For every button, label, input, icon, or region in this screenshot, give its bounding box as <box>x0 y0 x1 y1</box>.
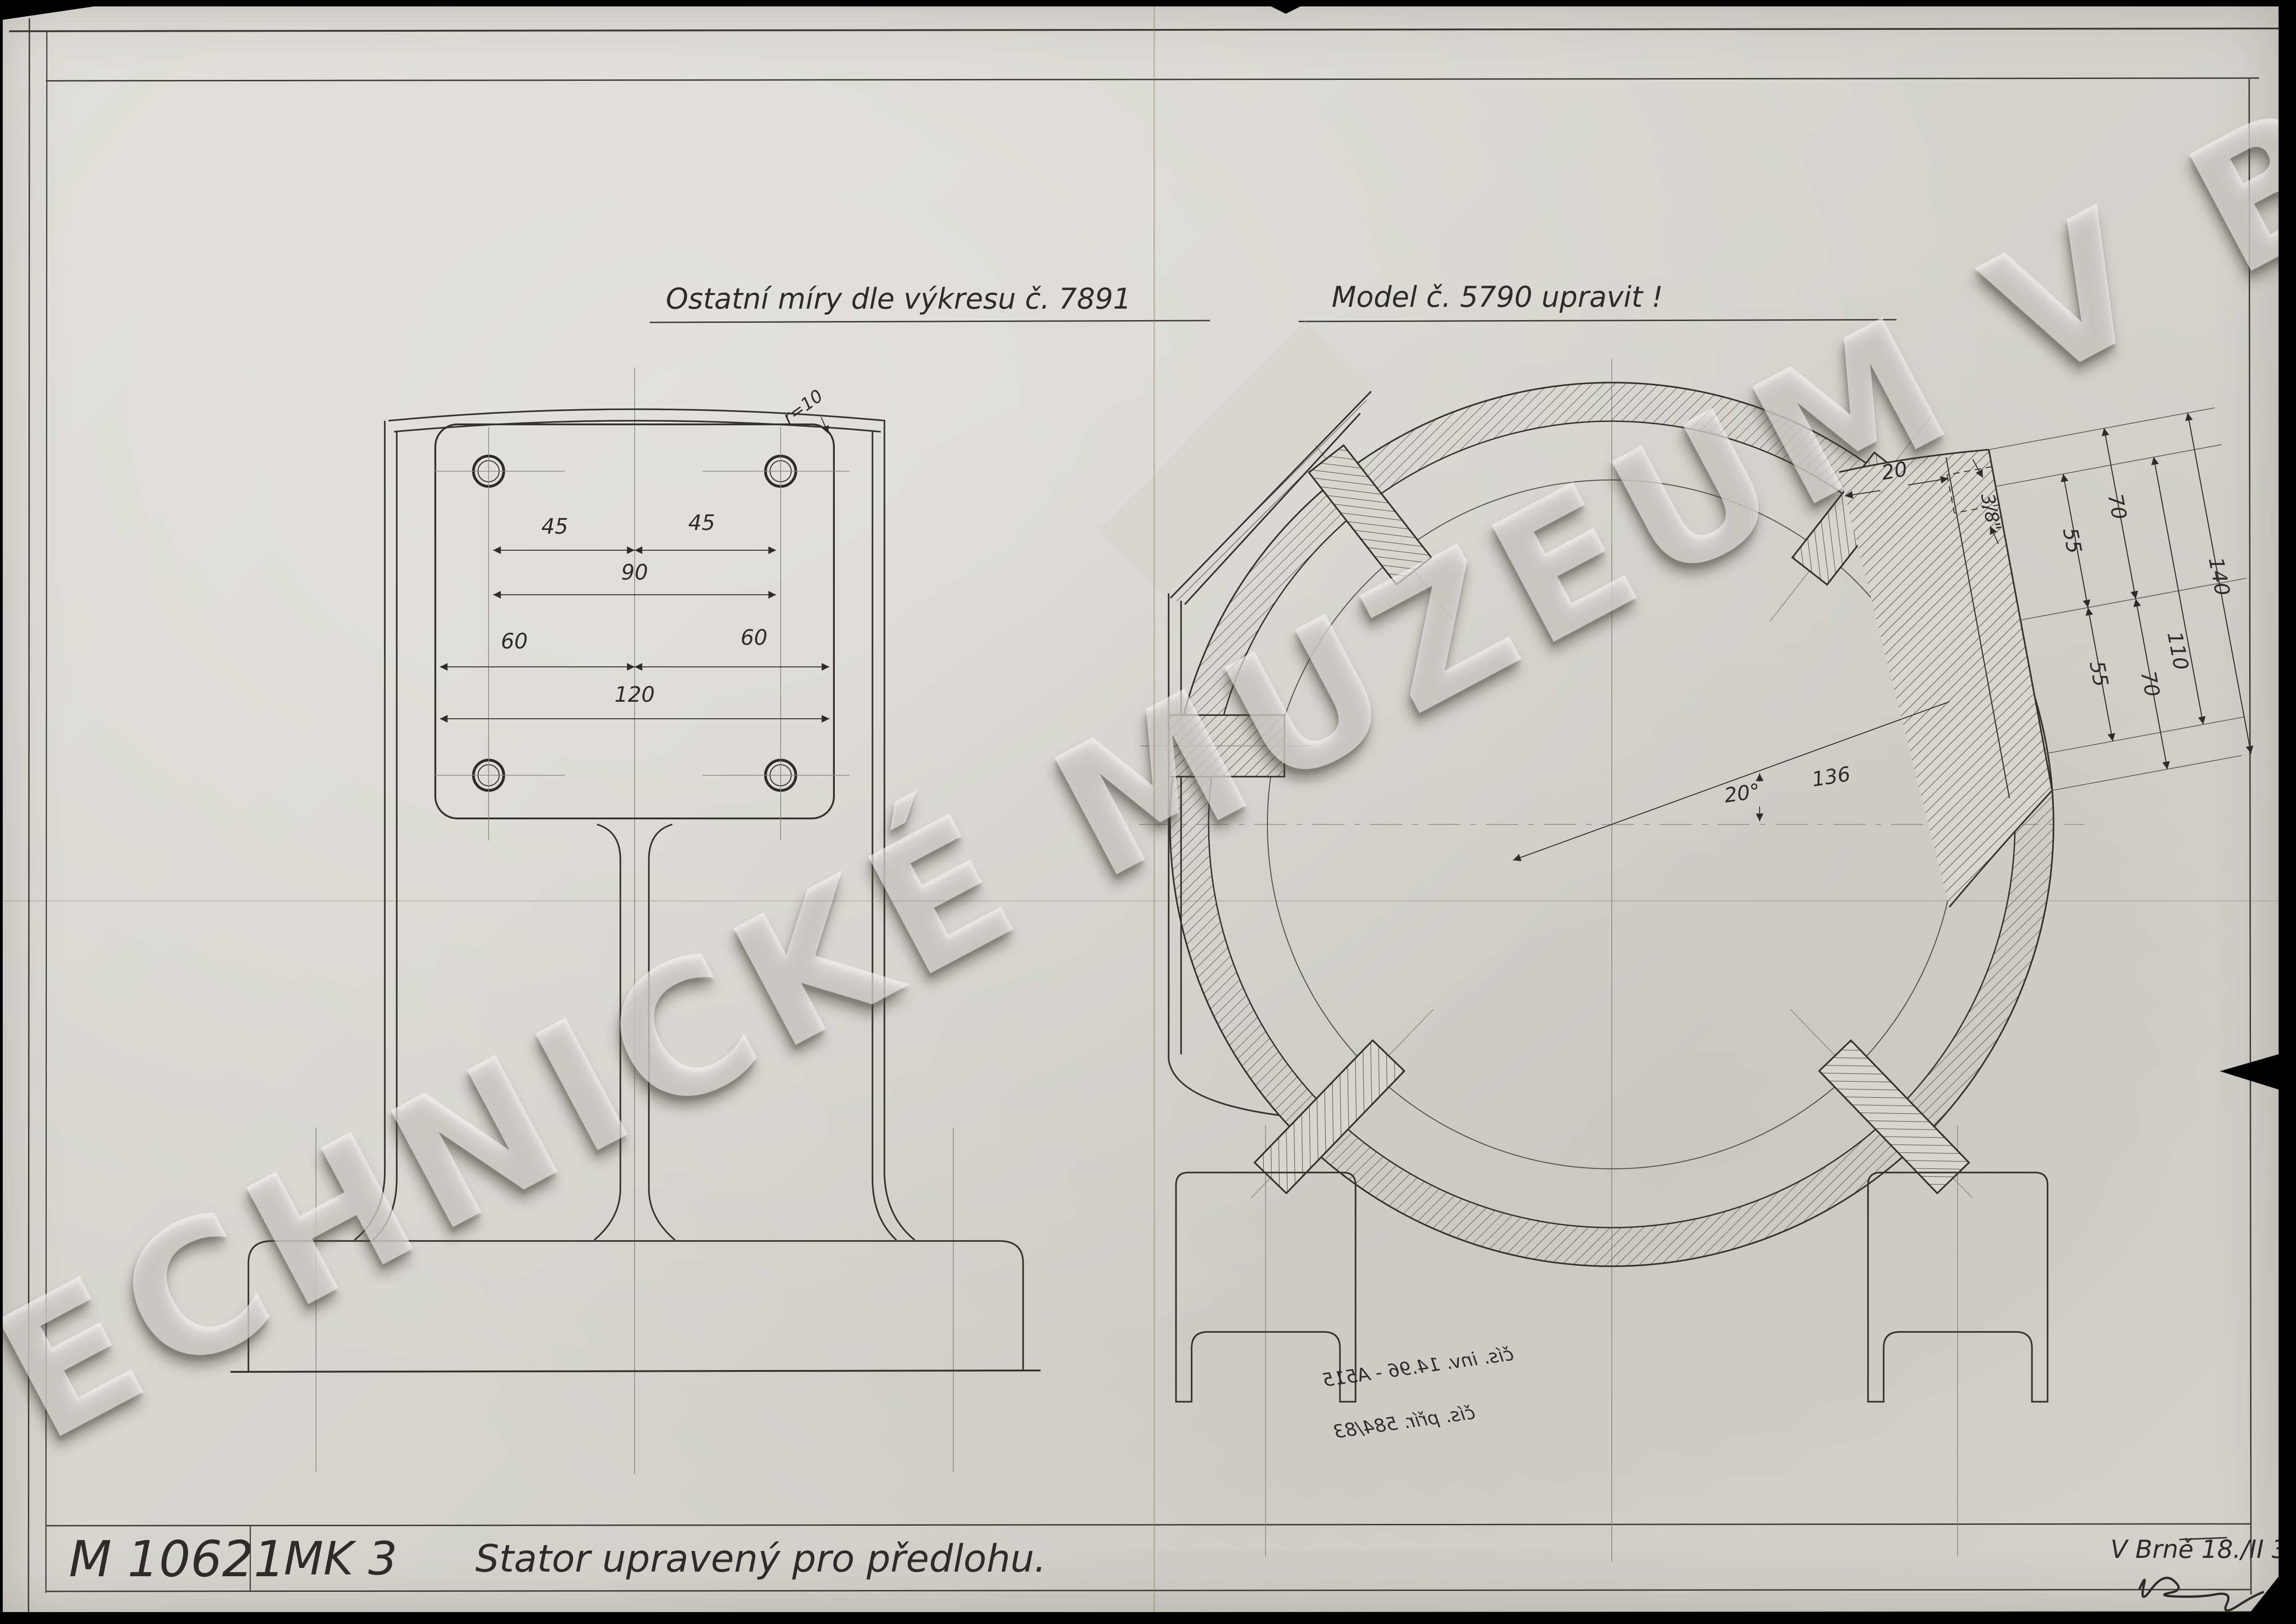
dim-pad-depth: 20 <box>1880 457 1909 485</box>
horizontal-fold-crease <box>0 900 2296 902</box>
left-lug <box>1140 715 1311 777</box>
dim-angle: 20° <box>1723 779 1761 807</box>
dim-45-right: 45 <box>688 510 715 535</box>
stamp-line2: čís. přír. 584/83 <box>1332 1402 1477 1443</box>
left-note: Ostatní míry dle výkresu č. 7891 <box>666 282 1131 316</box>
dim-55-upper: 55 <box>2058 526 2086 556</box>
title-block: M 10621 MK 3 Stator upravený pro předloh… <box>69 1531 2296 1611</box>
dim-70-lower: 70 <box>2136 669 2164 699</box>
dim-140: 140 <box>2204 555 2234 598</box>
left-view-front: 45 45 90 60 60 120 r=10 <box>231 367 1041 1474</box>
dim-90: 90 <box>621 560 648 585</box>
signature <box>2139 1578 2264 1611</box>
stamp-line1: čís. inv. 14.96 - A515 <box>1321 1343 1515 1391</box>
bolt-holes <box>433 427 850 840</box>
dim-55-lower: 55 <box>2085 659 2113 689</box>
dim-70-upper: 70 <box>2103 492 2131 522</box>
dim-60-right: 60 <box>741 625 768 650</box>
dim-110: 110 <box>2162 630 2193 672</box>
scanned-drawing-sheet: Ostatní míry dle výkresu č. 7891 Model č… <box>0 0 2296 1624</box>
scan-edge-bottom <box>0 1612 2296 1624</box>
drawing-canvas: Ostatní míry dle výkresu č. 7891 Model č… <box>0 0 2296 1624</box>
model-code: MK 3 <box>284 1532 397 1585</box>
dim-45-left: 45 <box>541 514 568 539</box>
dim-120: 120 <box>614 682 655 707</box>
dim-60-left: 60 <box>501 629 528 654</box>
drawing-title: Stator upravený pro předlohu. <box>475 1537 1046 1581</box>
handwritten-notes: Ostatní míry dle výkresu č. 7891 Model č… <box>650 280 1896 322</box>
right-view-section: 55 70 55 70 110 140 20 3/8" 20° 136 <box>1098 321 2251 1562</box>
scan-edge-right <box>2279 0 2296 1624</box>
drawing-number: M 10621 <box>69 1531 285 1588</box>
scan-edge-top <box>0 0 2296 6</box>
dim-corner-radius: r=10 <box>779 386 827 428</box>
dim-radius: 136 <box>1810 762 1852 792</box>
vertical-fold-crease <box>1154 0 1155 1624</box>
scan-edge-left <box>0 0 3 1624</box>
right-note: Model č. 5790 upravit ! <box>1332 280 1663 314</box>
stamp-bleedthrough: čís. inv. 14.96 - A515 čís. přír. 584/83 <box>1321 1343 1515 1443</box>
